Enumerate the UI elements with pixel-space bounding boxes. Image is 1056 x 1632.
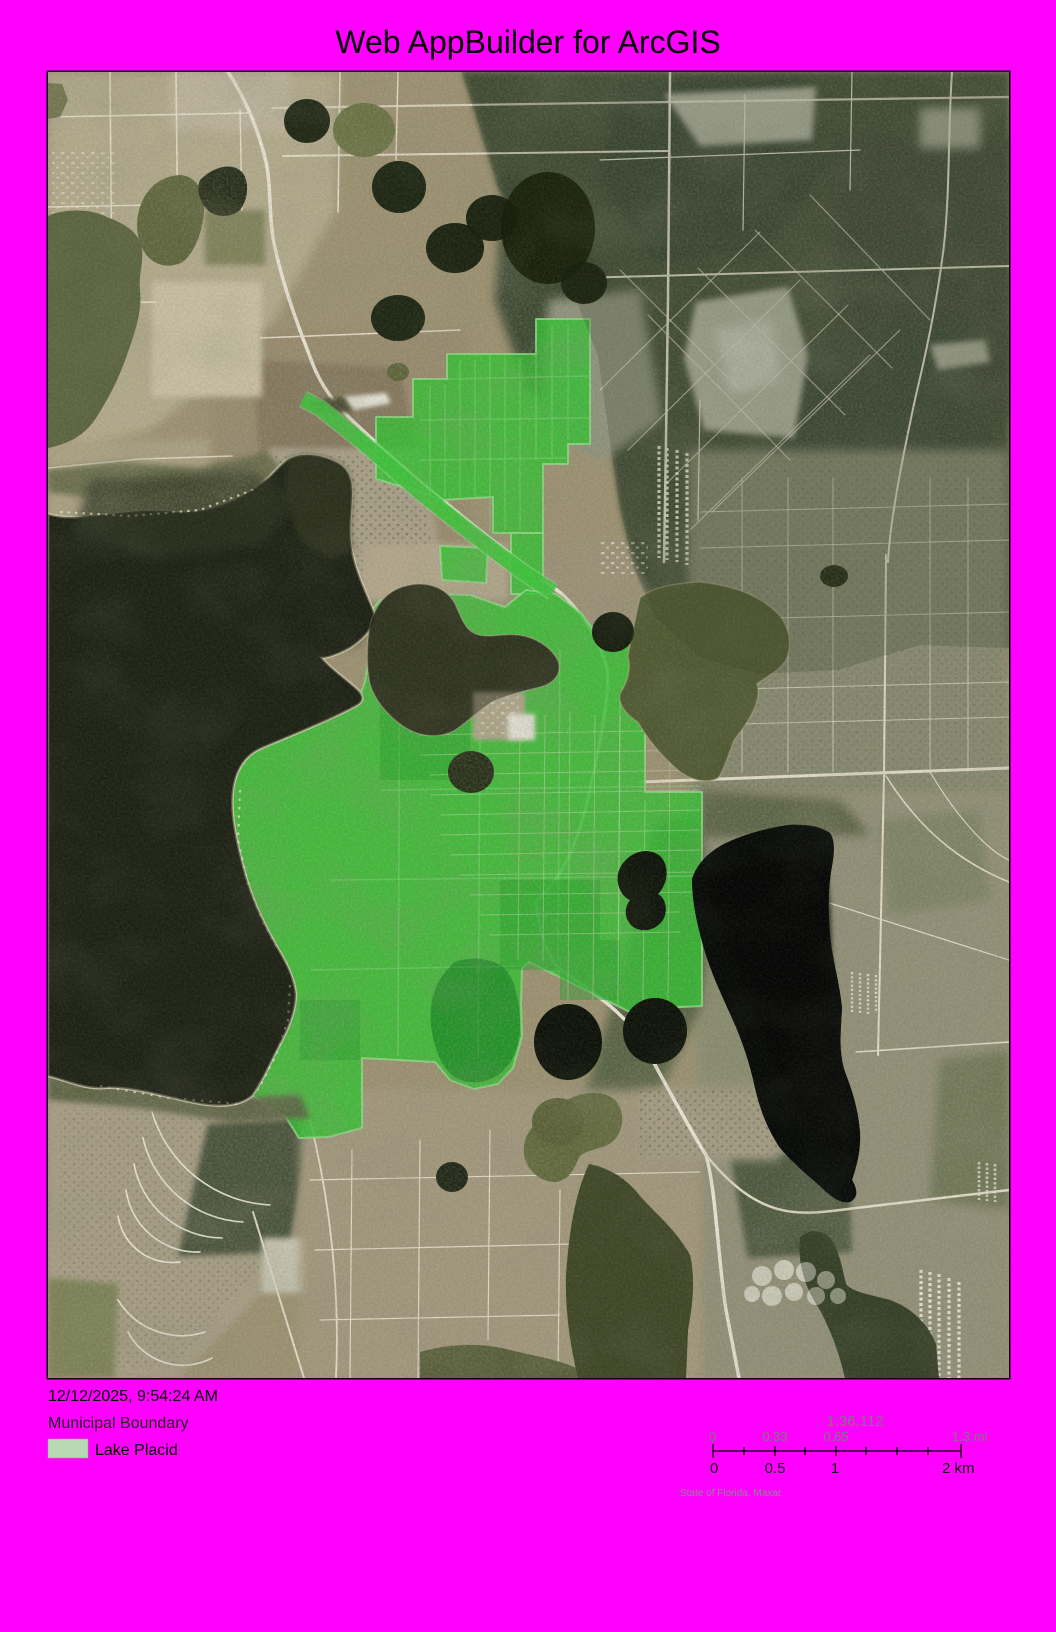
svg-text:1:36,112: 1:36,112 bbox=[826, 1413, 883, 1430]
svg-text:Web AppBuilder for ArcGIS: Web AppBuilder for ArcGIS bbox=[335, 24, 720, 60]
svg-text:1.3 mi: 1.3 mi bbox=[952, 1429, 988, 1444]
svg-text:State of Florida, Maxar: State of Florida, Maxar bbox=[680, 1488, 782, 1499]
svg-text:Municipal Boundary: Municipal Boundary bbox=[48, 1415, 189, 1432]
svg-text:0.5: 0.5 bbox=[765, 1460, 786, 1477]
svg-text:0: 0 bbox=[709, 1429, 716, 1444]
svg-text:0: 0 bbox=[710, 1460, 718, 1477]
svg-text:1: 1 bbox=[831, 1460, 839, 1477]
svg-text:12/12/2025, 9:54:24 AM: 12/12/2025, 9:54:24 AM bbox=[48, 1388, 218, 1405]
svg-text:0.33: 0.33 bbox=[762, 1429, 787, 1444]
svg-text:2 km: 2 km bbox=[942, 1460, 975, 1477]
svg-text:Lake Placid: Lake Placid bbox=[95, 1442, 178, 1459]
svg-text:0.65: 0.65 bbox=[823, 1429, 848, 1444]
